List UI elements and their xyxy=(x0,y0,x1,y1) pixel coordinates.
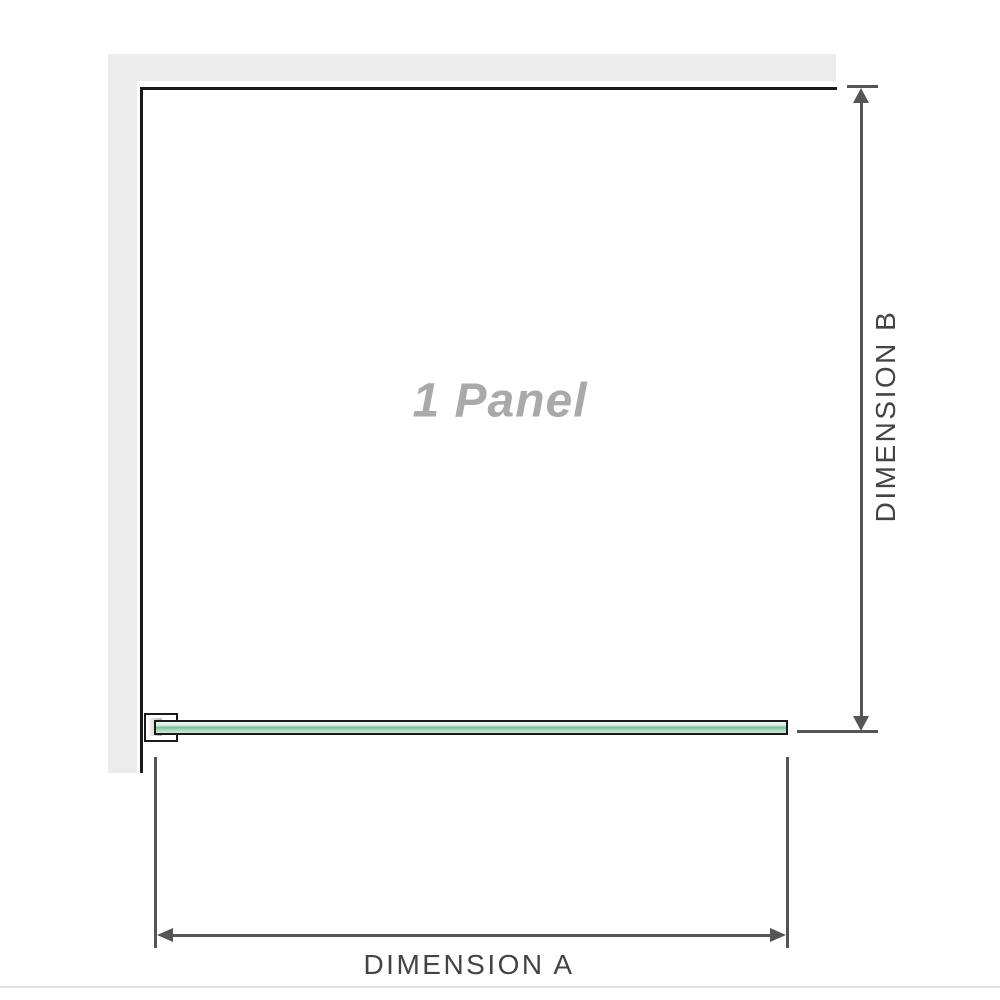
wall-segment-left xyxy=(108,54,137,773)
dimension-b-tick-bottom xyxy=(797,730,878,733)
dimension-b-arrow-up-icon xyxy=(853,88,869,103)
dimension-a-arrow-left-icon xyxy=(157,928,173,942)
page-divider xyxy=(0,986,1000,988)
enclosure-outline-top xyxy=(140,87,837,90)
wall-segment-top xyxy=(108,54,836,81)
dimension-b-arrow-down-icon xyxy=(853,716,869,731)
dimension-b-line xyxy=(860,96,863,718)
dimension-a-arrow-right-icon xyxy=(770,928,786,942)
panel-count-label: 1 Panel xyxy=(412,374,587,429)
glass-panel-bar xyxy=(154,720,788,735)
shower-panel-diagram: 1 Panel DIMENSION B DIMENSION A xyxy=(0,0,1000,1000)
dimension-a-line xyxy=(163,934,782,937)
dimension-a-extension-right xyxy=(786,757,789,948)
dimension-b-label: DIMENSION B xyxy=(870,310,902,523)
dimension-a-extension-left xyxy=(154,757,157,948)
enclosure-outline-left xyxy=(140,87,143,773)
dimension-a-label: DIMENSION A xyxy=(363,949,574,981)
